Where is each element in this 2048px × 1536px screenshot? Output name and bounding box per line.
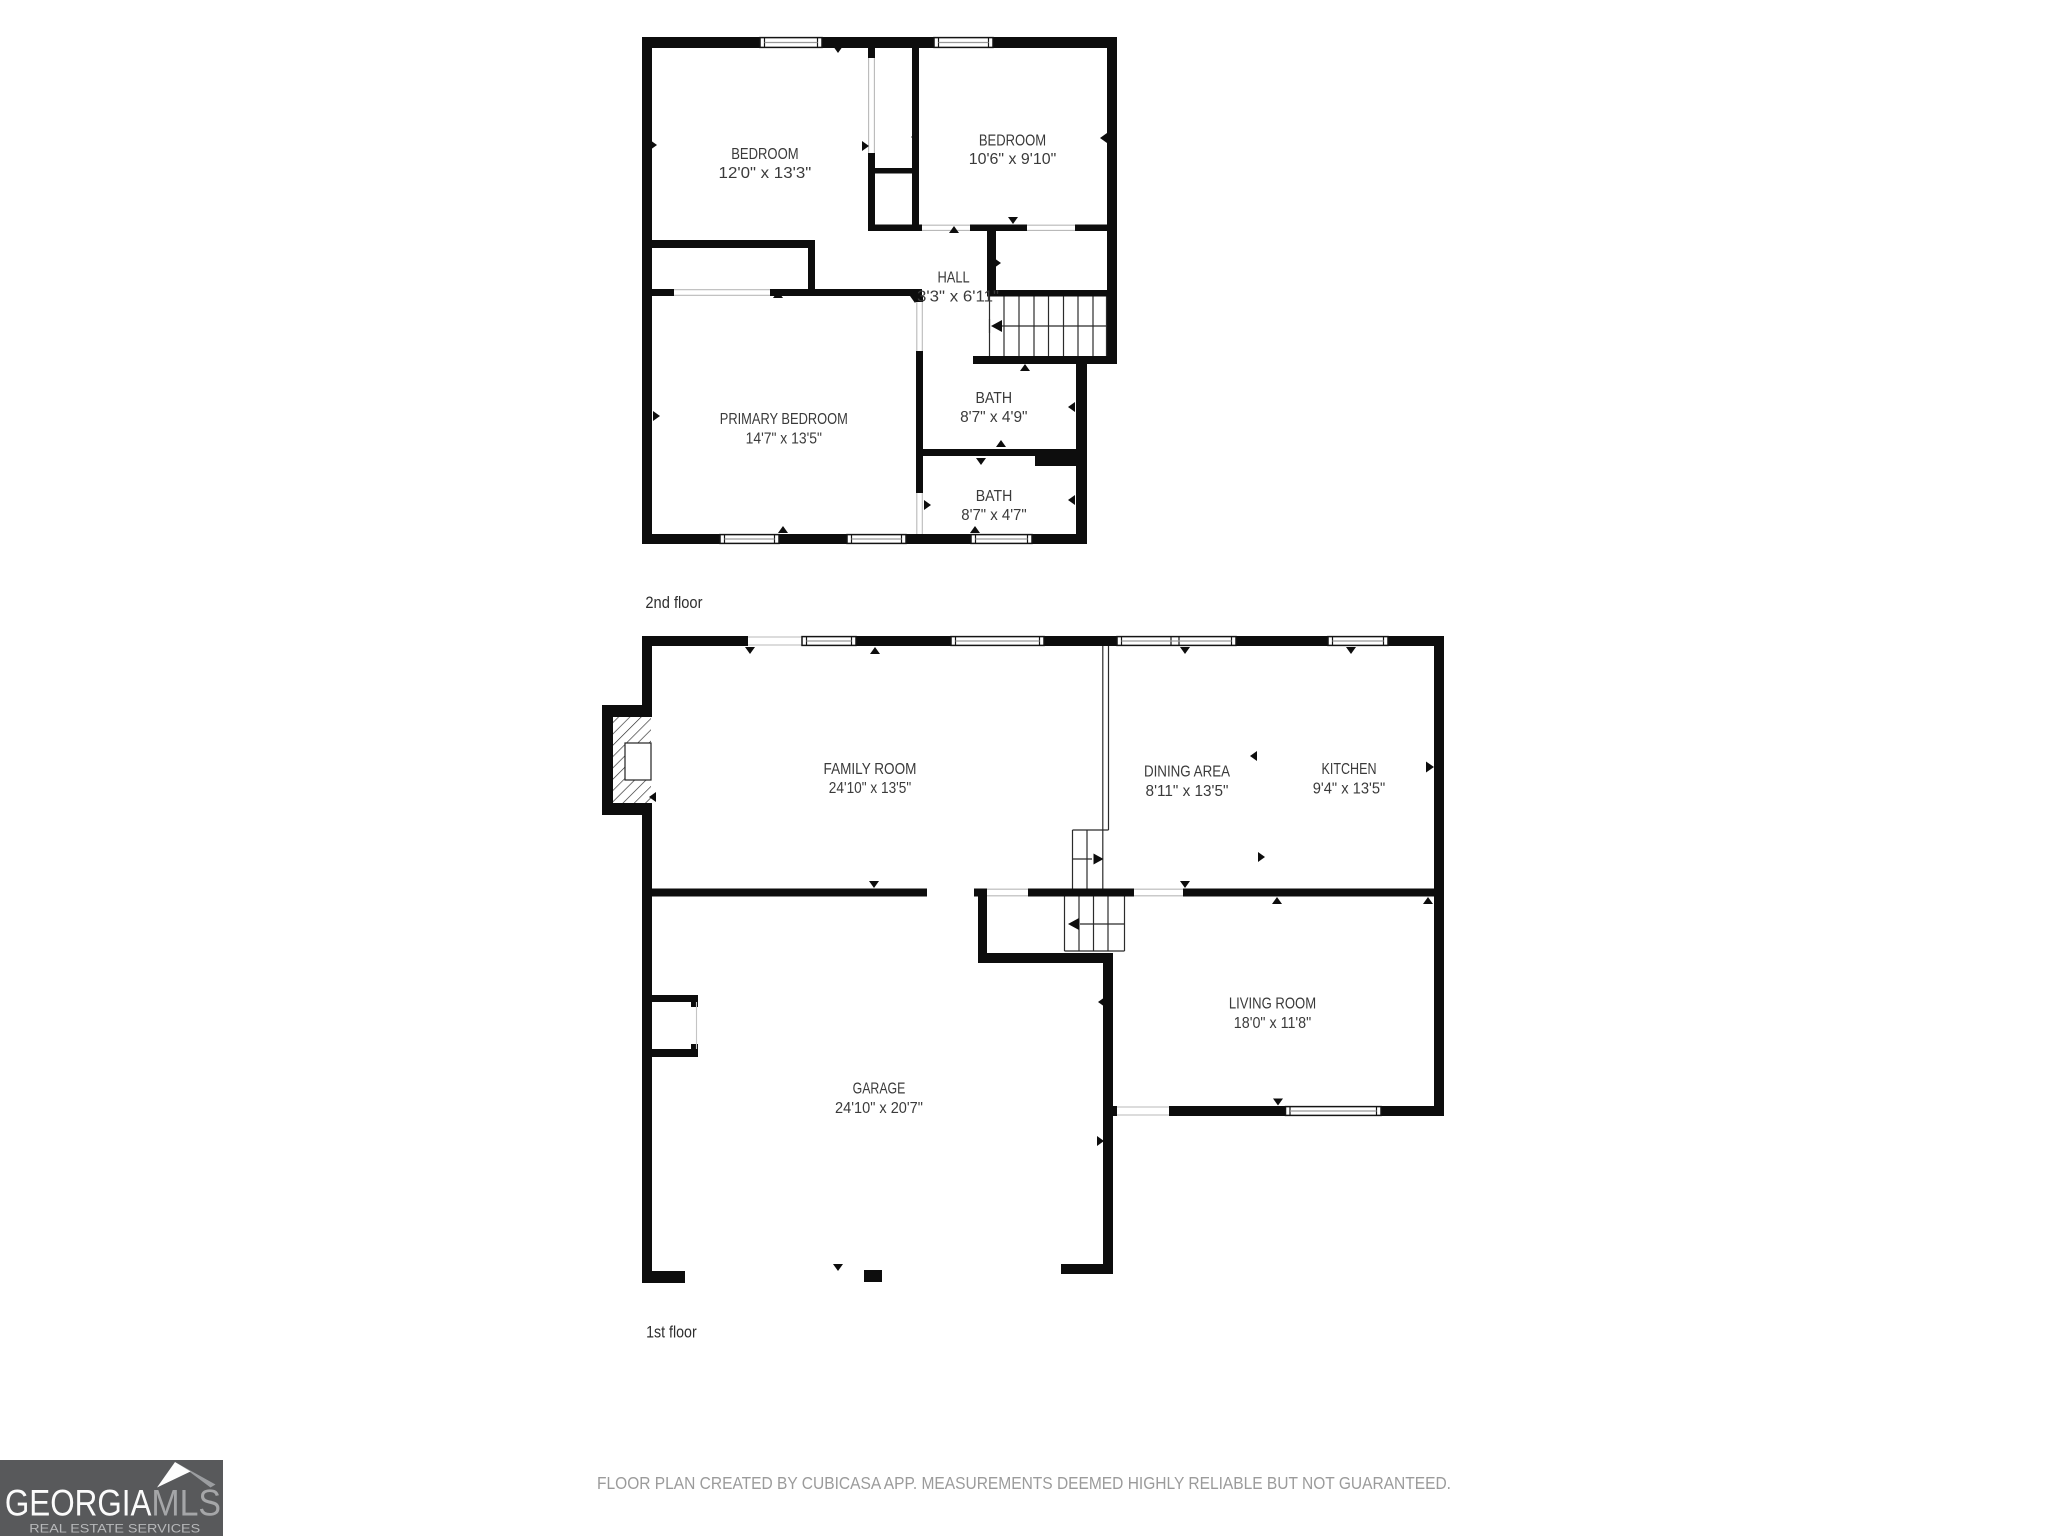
svg-text:9'4" x 13'5": 9'4" x 13'5" — [1313, 781, 1386, 798]
svg-text:BATH: BATH — [976, 488, 1013, 505]
svg-text:14'7" x 13'5": 14'7" x 13'5" — [746, 431, 822, 448]
svg-text:24'10" x 13'5": 24'10" x 13'5" — [829, 780, 911, 797]
svg-text:8'11" x 13'5": 8'11" x 13'5" — [1146, 783, 1229, 800]
svg-text:18'0" x 11'8": 18'0" x 11'8" — [1234, 1015, 1311, 1032]
svg-text:FAMILY ROOM: FAMILY ROOM — [824, 761, 917, 778]
svg-text:KITCHEN: KITCHEN — [1322, 761, 1377, 778]
svg-text:10'6" x 9'10": 10'6" x 9'10" — [969, 151, 1057, 168]
svg-text:BEDROOM: BEDROOM — [731, 146, 798, 163]
svg-text:8'7" x 4'7": 8'7" x 4'7" — [961, 507, 1026, 524]
svg-text:BATH: BATH — [976, 390, 1013, 407]
svg-text:FLOOR PLAN CREATED BY CUBICASA: FLOOR PLAN CREATED BY CUBICASA APP. MEAS… — [597, 1473, 1451, 1493]
svg-text:DINING AREA: DINING AREA — [1144, 763, 1231, 780]
svg-text:8'7" x 4'9": 8'7" x 4'9" — [960, 409, 1027, 426]
svg-text:12'0" x 13'3": 12'0" x 13'3" — [719, 165, 812, 182]
svg-text:GEORGIA: GEORGIA — [5, 1482, 152, 1524]
svg-text:REAL ESTATE SERVICES: REAL ESTATE SERVICES — [29, 1524, 200, 1536]
svg-text:3'3" x 6'11": 3'3" x 6'11" — [917, 288, 999, 305]
svg-text:GARAGE: GARAGE — [853, 1080, 906, 1097]
svg-text:PRIMARY BEDROOM: PRIMARY BEDROOM — [720, 411, 848, 428]
svg-text:BEDROOM: BEDROOM — [979, 132, 1046, 149]
svg-text:24'10" x 20'7": 24'10" x 20'7" — [835, 1100, 923, 1117]
svg-text:2nd floor: 2nd floor — [645, 593, 702, 612]
svg-text:LIVING ROOM: LIVING ROOM — [1229, 996, 1316, 1013]
svg-text:1st floor: 1st floor — [646, 1322, 697, 1341]
svg-text:HALL: HALL — [938, 269, 970, 286]
svg-text:MLS: MLS — [151, 1482, 221, 1524]
